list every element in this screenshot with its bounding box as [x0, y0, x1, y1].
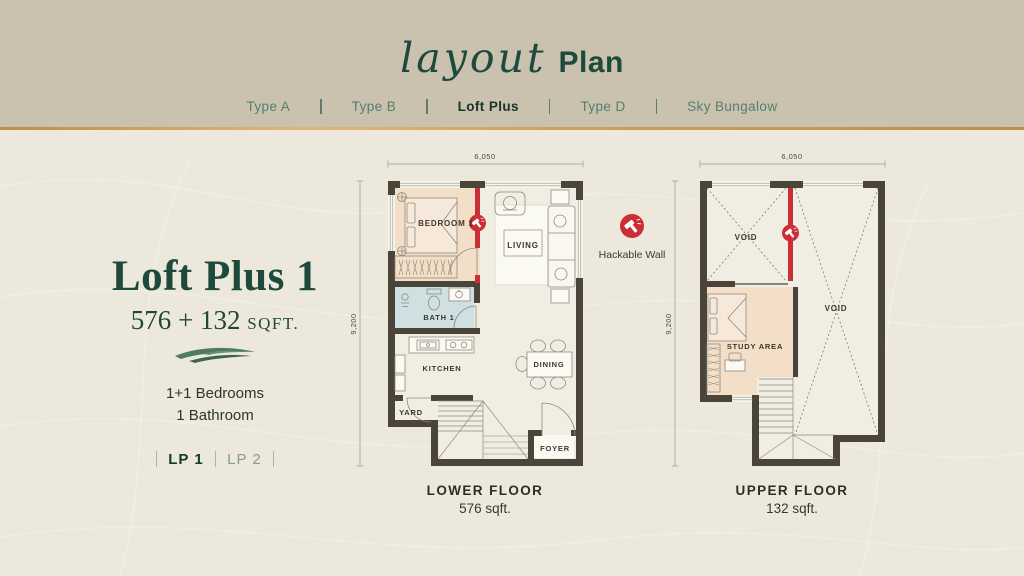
dim-height-label: 9,200 — [664, 313, 673, 334]
variant-switch: LP 1 LP 2 — [90, 451, 340, 468]
dim-width-label: 6,050 — [474, 152, 495, 161]
room-label-void-left: VOID — [735, 233, 758, 242]
page: layoutPlan Type A Type B Loft Plus Type … — [0, 0, 1024, 576]
room-label-bedroom: BEDROOM 1 — [418, 219, 474, 228]
bedrooms-text: 1+1 Bedrooms — [90, 383, 340, 405]
wave-icon — [173, 344, 257, 366]
tab-loft-plus[interactable]: Loft Plus — [428, 99, 549, 114]
lower-floor-caption: LOWER FLOOR 576 sqft. — [385, 483, 585, 516]
fridge-icon — [395, 355, 405, 391]
header: layoutPlan Type A Type B Loft Plus Type … — [0, 0, 1024, 127]
variant-lp2[interactable]: LP 2 — [227, 451, 262, 468]
tab-type-d[interactable]: Type D — [550, 99, 655, 114]
kitchen-counter-icon — [409, 337, 474, 353]
variant-lp1[interactable]: LP 1 — [168, 451, 203, 468]
dim-width-label: 6,050 — [781, 152, 802, 161]
unit-area-value: 576 + 132 — [131, 305, 241, 335]
upper-floor-plan: 6,050 9,200 — [655, 148, 910, 480]
tab-separator — [549, 99, 551, 114]
upper-floor-title: UPPER FLOOR — [692, 483, 892, 498]
variant-separator — [215, 451, 217, 467]
lower-floor-title: LOWER FLOOR — [385, 483, 585, 498]
room-label-yard: YARD — [399, 408, 423, 417]
hackable-wall-badge — [619, 213, 645, 239]
tab-separator — [320, 99, 322, 114]
unit-info-panel: Loft Plus 1 576 + 132 SQFT. 1+1 Bedrooms… — [90, 252, 340, 468]
unit-area-unit: SQFT. — [247, 314, 299, 333]
page-title-plain: Plan — [558, 46, 623, 79]
room-label-void-right: VOID — [825, 304, 848, 313]
upper-floor-caption: UPPER FLOOR 132 sqft. — [692, 483, 892, 516]
tab-sky-bungalow[interactable]: Sky Bungalow — [657, 99, 807, 114]
layout-tabs: Type A Type B Loft Plus Type D Sky Bunga… — [0, 99, 1024, 114]
basin-icon — [449, 288, 470, 301]
page-title: layoutPlan — [0, 34, 1024, 82]
page-title-script: layout — [400, 34, 546, 82]
bed-icon — [708, 294, 746, 341]
tab-separator — [656, 99, 658, 114]
variant-separator — [273, 451, 275, 467]
tab-type-a[interactable]: Type A — [216, 99, 320, 114]
unit-name: Loft Plus 1 — [90, 252, 340, 301]
dim-height-label: 9,200 — [349, 313, 358, 334]
tab-separator — [426, 99, 428, 114]
gold-divider — [0, 127, 1024, 130]
upper-floor-area: 132 sqft. — [692, 501, 892, 516]
variant-separator — [156, 451, 158, 467]
room-label-kitchen: KITCHEN — [423, 364, 462, 373]
lower-floor-plan: 6,050 9,200 — [345, 148, 600, 480]
hackable-wall-badge — [782, 225, 799, 242]
sofa-icon — [548, 190, 575, 303]
room-label-dining: DINING — [533, 360, 564, 369]
bathrooms-text: 1 Bathroom — [90, 405, 340, 427]
room-label-living: LIVING — [507, 241, 538, 250]
tab-type-b[interactable]: Type B — [322, 99, 426, 114]
room-label-study: STUDY AREA — [727, 342, 783, 351]
wardrobe-floor — [395, 253, 457, 281]
room-label-foyer: FOYER — [540, 444, 570, 453]
lower-floor-area: 576 sqft. — [385, 501, 585, 516]
unit-meta: 1+1 Bedrooms 1 Bathroom — [90, 383, 340, 427]
unit-area: 576 + 132 SQFT. — [90, 305, 340, 336]
room-label-bath: BATH 1 — [423, 313, 454, 322]
